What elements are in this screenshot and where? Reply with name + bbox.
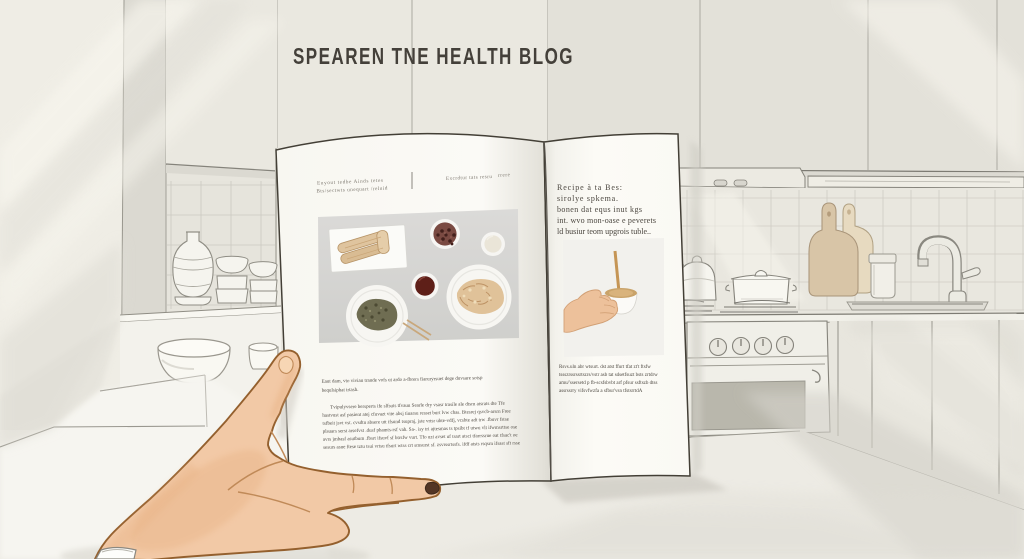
svg-text:Rsvs.uln abr wtsurt. dst atst: Rsvs.uln abr wtsurt. dst atst ffurt tfat… xyxy=(559,365,651,370)
svg-text:assrssrry vifsvfwzfa a sfbur'v: assrssrry vifsvfwzfa a sfbur'vsn tfstsrr… xyxy=(559,389,643,394)
svg-text:rrere: rrere xyxy=(498,172,511,179)
svg-text:ld busiur teom upgrois tuble..: ld busiur teom upgrois tuble.. xyxy=(557,227,651,236)
svg-text:Recipe à ta Bes:: Recipe à ta Bes: xyxy=(557,183,622,192)
svg-text:bequlsiphat irtash.: bequlsiphat irtash. xyxy=(322,388,359,394)
svg-text:bonen dat equs inut kgs: bonen dat equs inut kgs xyxy=(557,205,642,214)
svg-text:sirolye spkema.: sirolye spkema. xyxy=(557,194,618,203)
svg-text:SPEAREN TNE HEALTH BLOG: SPEAREN TNE HEALTH BLOG xyxy=(293,43,574,69)
svg-text:int. wvo mon-oase e peverets: int. wvo mon-oase e peverets xyxy=(557,216,656,225)
svg-text:amu/'ssersetd p fb-scsfsbvbt a: amu/'ssersetd p fb-scsfsbvbt arf pfsur s… xyxy=(559,381,657,386)
svg-text:tssszrssrssrtszrs/vstr asb tat: tssszrssrssrtszrs/vstr asb tat sdsetfsuz… xyxy=(559,373,658,378)
